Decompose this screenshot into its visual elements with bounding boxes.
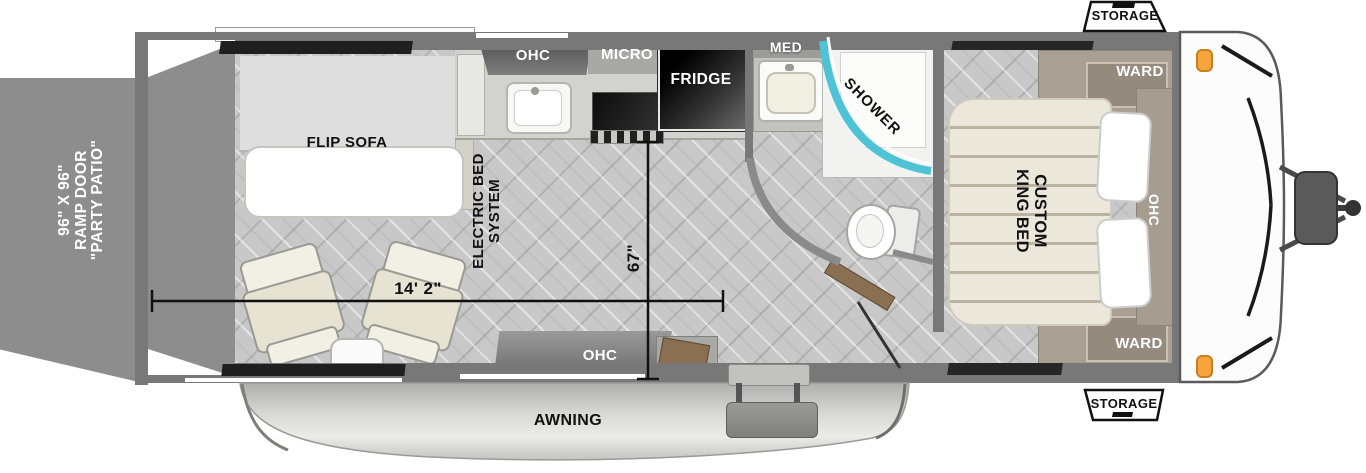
bed-ohc-label: OHC [1141, 170, 1167, 250]
hitch-ball [1345, 200, 1361, 216]
marker-light-bottom [1196, 355, 1213, 378]
storage-tag-bottom-notch [1112, 412, 1133, 417]
front-cap-accent-sweep-bottom [1248, 205, 1271, 316]
awning-left-edge [242, 384, 288, 450]
front-wall [1172, 32, 1182, 383]
dimension-length-label: 14' 2" [358, 280, 478, 299]
storage-top-label: STORAGE [1090, 8, 1160, 24]
rear-wall [135, 32, 148, 385]
storage-bottom-label: STORAGE [1089, 396, 1159, 412]
bottom-ohc-label: OHC [570, 348, 630, 365]
microwave-label: MICRO [587, 47, 667, 64]
kitchen-ohc-label: OHC [493, 48, 573, 65]
bath-sink-basin [766, 72, 816, 114]
entry-step-platform [726, 402, 818, 438]
living-bottom-window [221, 364, 405, 376]
bedroom-top-vent [951, 41, 1094, 50]
bedroom-wall [933, 32, 944, 332]
fridge-label: FRIDGE [651, 72, 751, 89]
front-cap-accent-sweep-top [1248, 98, 1271, 205]
bath-faucet [785, 64, 794, 71]
wardrobe-top-label: WARD [1100, 63, 1180, 81]
toilet-seat [856, 214, 884, 248]
top-wall-window-strip [476, 33, 568, 38]
electric-bed-system-label: ELECTRIC BED SYSTEM [465, 136, 509, 286]
ramp-door-label: 96" X 96" RAMP DOOR "PARTY PATIO" [47, 110, 117, 290]
kitchen-sink-basin [514, 90, 562, 126]
awning-right-edge [876, 384, 905, 438]
top-wall-doorway [135, 32, 237, 40]
hitch-aframe [1280, 167, 1345, 250]
dimension-width-label: 67" [623, 218, 645, 298]
pantry [457, 54, 485, 136]
bottom-wall-strip-mid [460, 374, 645, 379]
bedroom-bottom-window [947, 363, 1063, 375]
wardrobe-bottom-label: WARD [1099, 335, 1179, 353]
bottom-wall-strip-left [185, 378, 402, 382]
sofa-window [219, 41, 413, 54]
front-cap-accent-top [1222, 46, 1272, 76]
flip-sofa-seat [244, 146, 464, 218]
floorplan: 96" X 96" RAMP DOOR "PARTY PATIO" FLIP S… [0, 0, 1366, 473]
ramp-doorway-opening [148, 43, 235, 377]
awning-label: AWNING [508, 411, 628, 431]
front-cap-accent-bottom [1222, 338, 1272, 368]
kitchen-faucet [531, 87, 539, 95]
front-cap [1180, 32, 1284, 382]
med-cabinet-label: MED [750, 39, 822, 55]
flip-sofa-label: FLIP SOFA [277, 135, 417, 152]
marker-light-top [1196, 49, 1213, 72]
king-bed-label: CUSTOM KING BED [1005, 131, 1055, 291]
propane-tank [1295, 172, 1337, 244]
range-knobs [590, 130, 664, 144]
